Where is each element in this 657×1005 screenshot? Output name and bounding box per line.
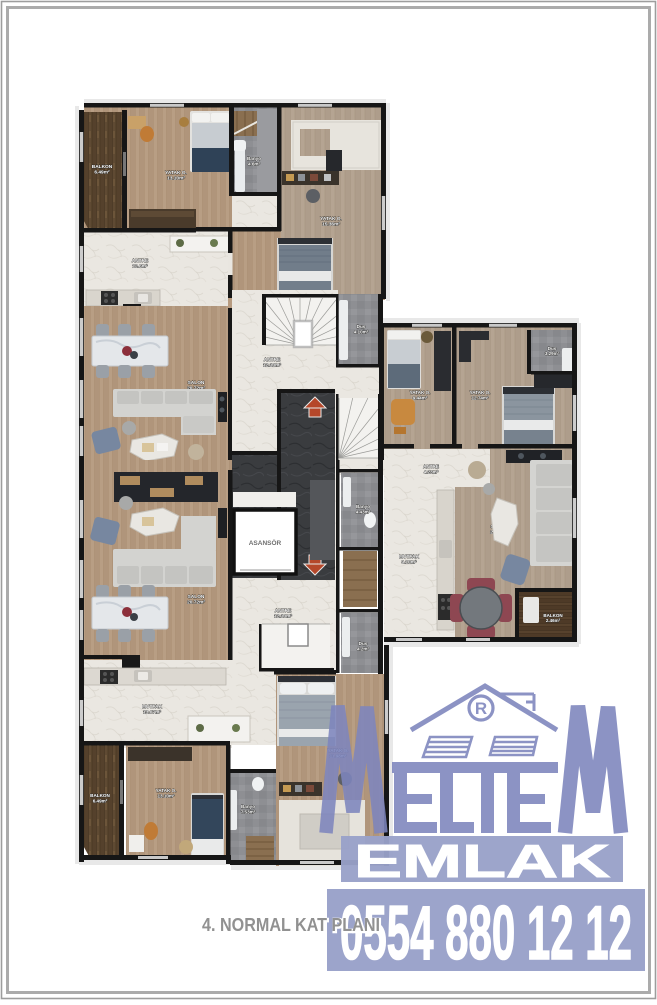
- svg-text:ANTRE12.10m²: ANTRE12.10m²: [274, 608, 292, 620]
- svg-text:ANTRE12.6m²: ANTRE12.6m²: [132, 258, 149, 270]
- svg-text:ANTRE12.10m²: ANTRE12.10m²: [263, 357, 281, 369]
- svg-text:ASANSÖR: ASANSÖR: [249, 538, 282, 547]
- svg-text:4. NORMAL KAT PLANI: 4. NORMAL KAT PLANI: [202, 914, 380, 935]
- svg-text:Banyo7.53m²: Banyo7.53m²: [241, 804, 256, 814]
- svg-text:YATAK O.13.10m²: YATAK O.13.10m²: [165, 170, 187, 182]
- svg-text:Banyo4.6m²: Banyo4.6m²: [247, 156, 261, 166]
- svg-text:YATAK O.15.36m²: YATAK O.15.36m²: [320, 216, 342, 228]
- svg-text:YATAK O.13.10m²: YATAK O.13.10m²: [156, 788, 177, 798]
- svg-text:ANTRE4.23m²: ANTRE4.23m²: [423, 464, 439, 474]
- svg-text:R: R: [475, 699, 487, 718]
- svg-text:MUTFAK13.07m²: MUTFAK13.07m²: [142, 704, 163, 716]
- svg-text:BALKON2.46m²: BALKON2.46m²: [543, 613, 562, 623]
- svg-text:MUTFAK9.10m²: MUTFAK9.10m²: [399, 554, 420, 566]
- svg-text:EMLAK: EMLAK: [354, 835, 610, 887]
- svg-text:Banyo4.43m²: Banyo4.43m²: [356, 504, 371, 514]
- svg-text:SALON20.72m²: SALON20.72m²: [187, 594, 205, 606]
- svg-text:0554 880 12 12: 0554 880 12 12: [340, 891, 632, 976]
- svg-text:YATAK O.12.74m²: YATAK O.12.74m²: [470, 390, 491, 400]
